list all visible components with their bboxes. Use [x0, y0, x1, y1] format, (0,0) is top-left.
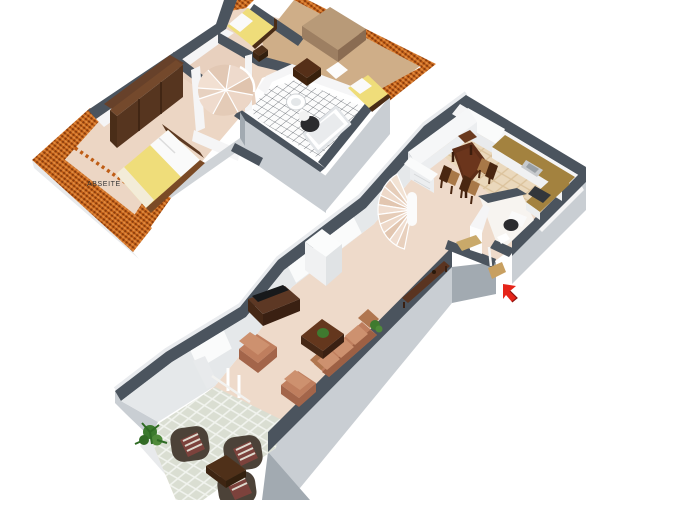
svg-text:ABSEITE: ABSEITE — [87, 181, 121, 188]
